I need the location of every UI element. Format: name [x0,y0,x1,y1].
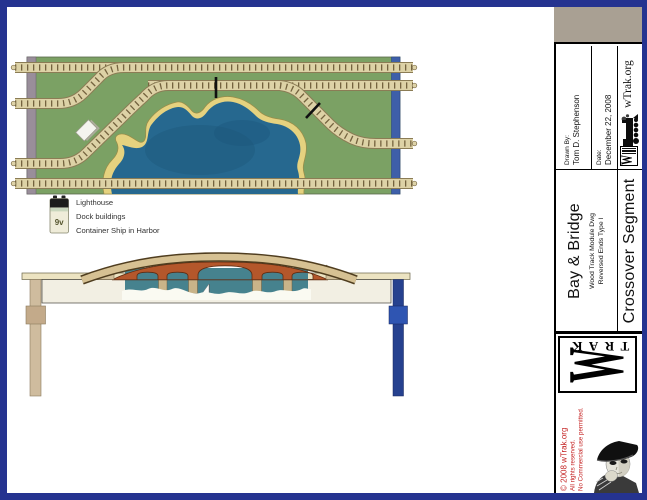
wtrak-logo: TRAK W [558,336,637,393]
module-subtitle-1: Wood Track Module Dwg [587,171,596,331]
spy-photo [593,436,642,493]
copyright-block: © 2008 wTrak.org All rights reserved. No… [560,401,587,491]
logo-w-text: W [560,347,635,383]
segment-type: Crossover Segment [621,171,639,331]
drawn-by-label: Drawn By: [563,45,571,165]
divider-line [554,331,642,334]
rights-line-1: All rights reserved. [570,401,578,491]
mini-logo-w: W [621,154,637,165]
wtrak-logo-art: TRAK W [560,338,635,391]
site-name: wTrak.org [622,52,634,116]
rights-line-2: No Commercial use permitted. [578,401,586,491]
locomotive-icon [620,114,640,148]
wtrak-mini-logo: W [620,146,638,166]
title-block: Drawn By: Tom D. Stephenson Date: Decemb… [554,7,642,493]
date-label: Date: [595,45,603,165]
module-title-cell: Bay & Bridge Wood Track Module Dwg Rever… [565,171,605,331]
module-subtitle-2: Reversed Ends Type I [597,171,606,331]
mini-logo-stripe [622,150,636,152]
module-title: Bay & Bridge [565,171,583,331]
copyright-line: © 2008 wTrak.org [560,401,570,491]
divider-line [617,46,618,331]
drawing-sheet: 9v Lighthouse Dock buildings Container S… [0,0,647,500]
date-value: December 22, 2008 [604,45,614,165]
title-block-border [554,7,556,493]
drawn-by-value: Tom D. Stephenson [572,45,582,165]
drawn-by-cell: Drawn By: Tom D. Stephenson [563,45,581,169]
divider-line [591,46,592,169]
revision-box [554,7,642,44]
date-cell: Date: December 22, 2008 [595,45,613,169]
mini-logo-stripe [622,148,636,150]
sheet-background [7,7,642,493]
